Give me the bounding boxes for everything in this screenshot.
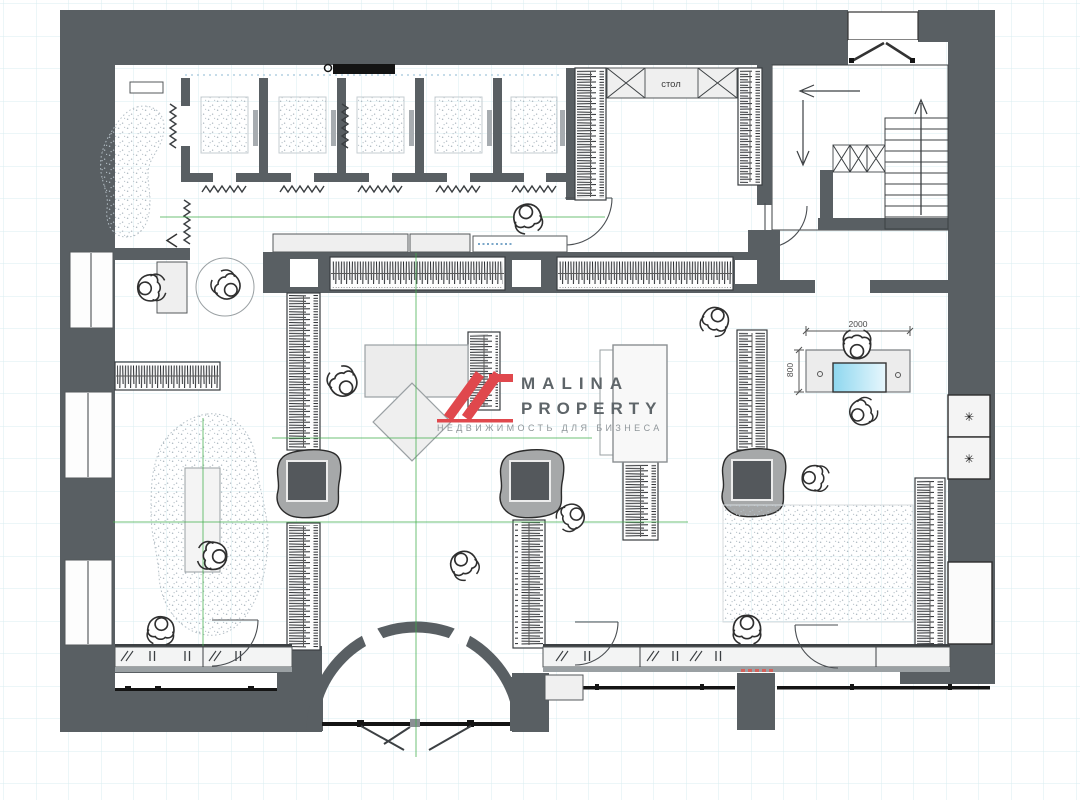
- clothing-rack: [287, 523, 320, 650]
- fitting-room-mat: [201, 97, 248, 153]
- floor-plan-drawing: ✳ ✳: [0, 0, 1080, 800]
- watermark-title-line1: MALINA: [521, 374, 629, 393]
- watermark-title-line2: PROPERTY: [521, 399, 663, 418]
- svg-text:2000: 2000: [849, 319, 868, 329]
- clothing-rack: [623, 462, 658, 540]
- fitting-room-mat: [357, 97, 404, 153]
- table-counter-row: стол: [607, 68, 737, 98]
- clothing-rack: [915, 478, 945, 648]
- island-left: [151, 414, 268, 636]
- clothing-rack: [575, 68, 606, 200]
- x-hatch-unit: [833, 145, 885, 172]
- clothing-rack: [287, 293, 320, 450]
- side-cabinet: [545, 675, 583, 700]
- clothing-rack: [737, 330, 767, 450]
- svg-text:800: 800: [785, 363, 795, 377]
- clothing-rack: [738, 68, 762, 185]
- clothing-rack: [513, 520, 545, 648]
- right-wall-niche: [948, 562, 992, 644]
- floor-plan-screenshot: ✳ ✳: [0, 0, 1080, 800]
- track-light: [325, 64, 396, 74]
- fitting-room-mat: [435, 97, 482, 153]
- left-wall-windows: [65, 252, 113, 645]
- appliance-asterisk-2: ✳: [964, 452, 974, 466]
- monitor: [833, 363, 886, 392]
- watermark: MALINA PROPERTY НЕДВИЖИМОСТЬ ДЛЯ БИЗНЕСА: [437, 374, 663, 433]
- entry-vestibule: [848, 12, 918, 65]
- fitting-room-mat: [279, 97, 326, 153]
- clothing-rack: [557, 257, 733, 290]
- wall-shelf: [130, 82, 163, 93]
- clothing-rack: [115, 362, 220, 390]
- carpet-right: [723, 505, 913, 622]
- appliance-asterisk-1: ✳: [964, 410, 974, 424]
- clothing-rack: [330, 257, 505, 290]
- watermark-tagline: НЕДВИЖИМОСТЬ ДЛЯ БИЗНЕСА: [437, 423, 663, 433]
- table-label: стол: [661, 79, 681, 90]
- fitting-room-mat: [511, 97, 557, 153]
